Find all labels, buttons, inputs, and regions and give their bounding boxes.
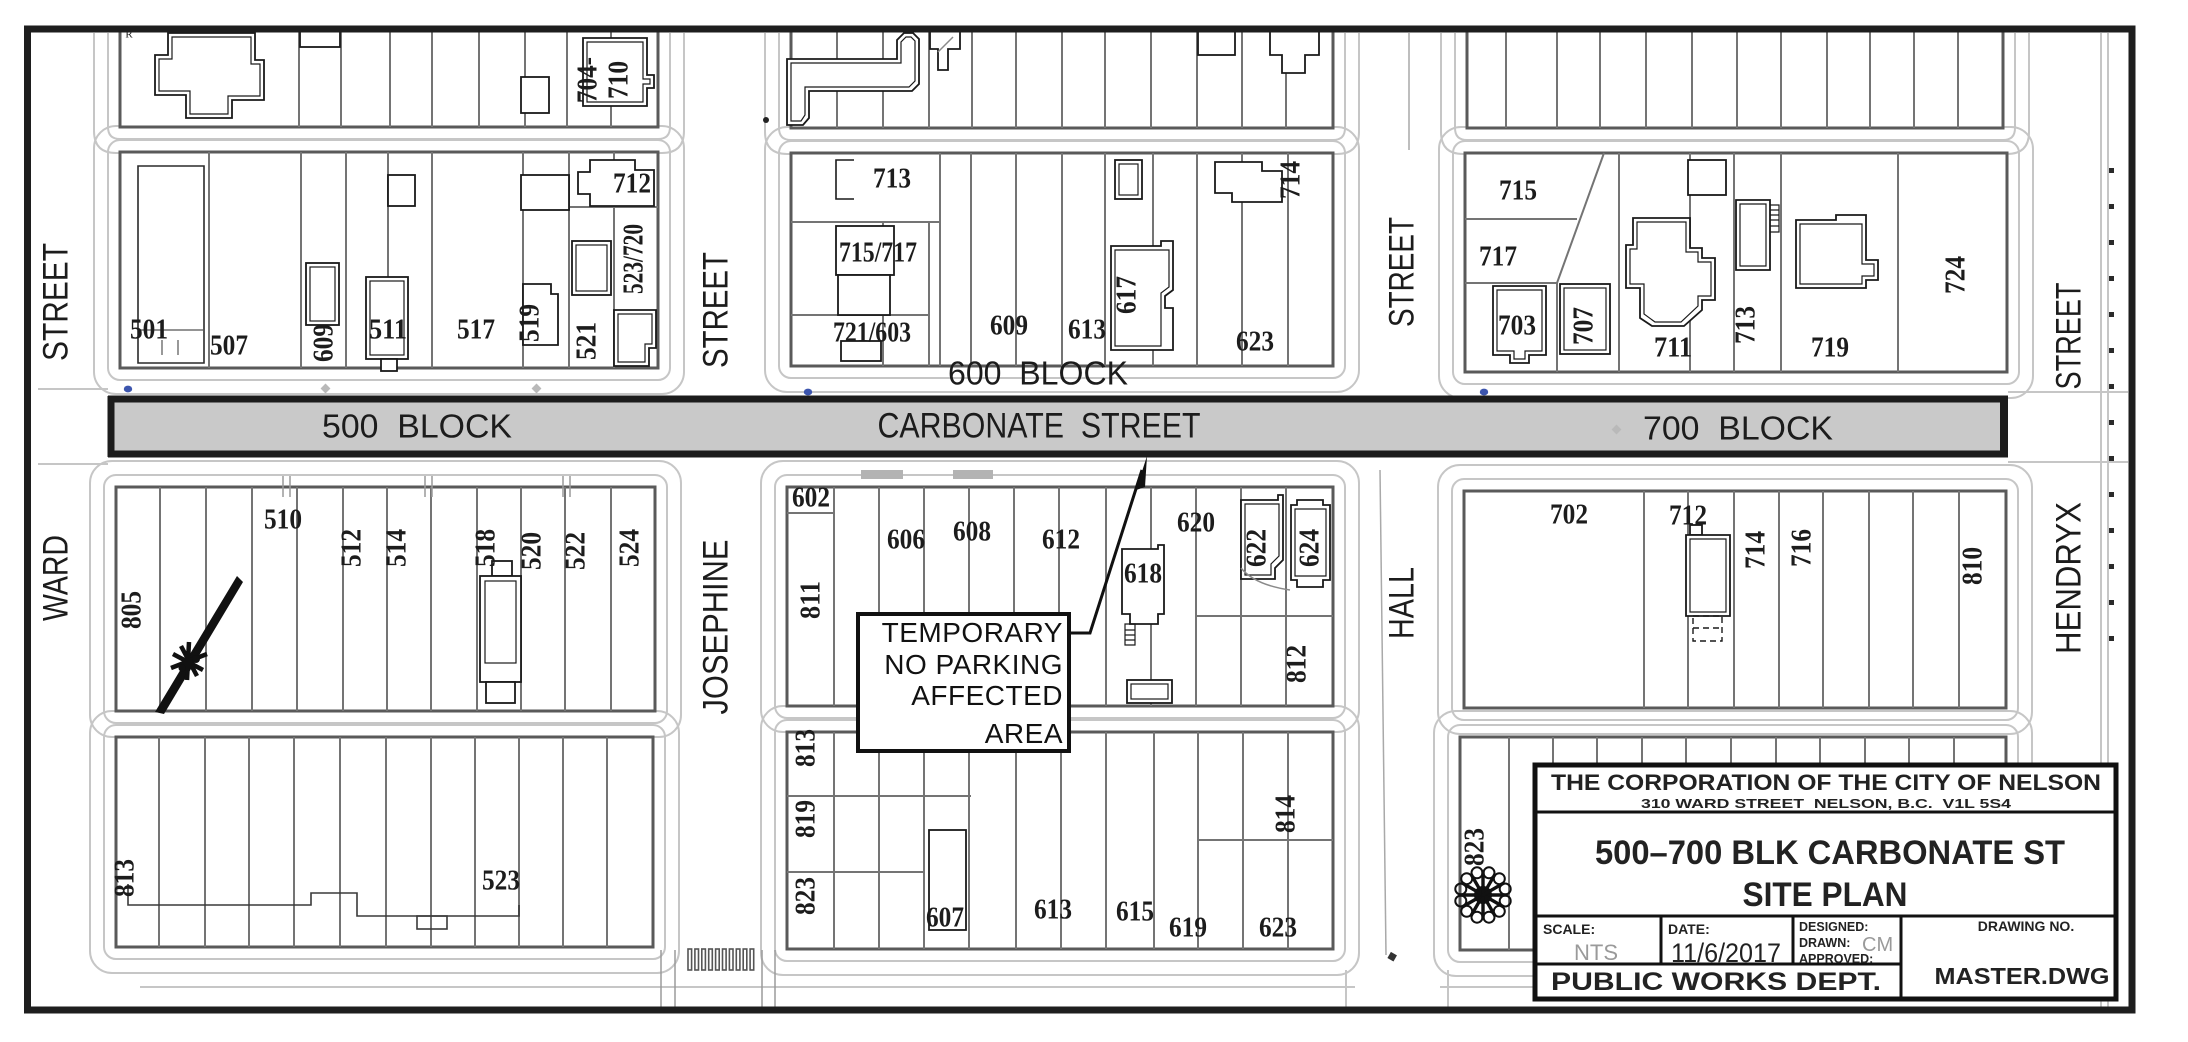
svg-text:717: 717 [1479, 241, 1517, 273]
svg-text:623: 623 [1236, 326, 1274, 358]
svg-text:STREET: STREET [696, 252, 735, 368]
svg-text:520: 520 [516, 532, 548, 570]
svg-text:507: 507 [210, 330, 248, 362]
svg-text:518: 518 [470, 529, 502, 567]
svg-text:704-: 704- [572, 57, 604, 103]
svg-text:514: 514 [381, 529, 413, 567]
svg-text:600 BLOCK: 600 BLOCK [948, 355, 1128, 392]
svg-text:711: 711 [1654, 332, 1692, 364]
svg-text:707: 707 [1568, 307, 1600, 345]
svg-text:620: 620 [1177, 507, 1215, 539]
svg-text:517: 517 [457, 314, 495, 346]
svg-text:715: 715 [1499, 175, 1537, 207]
svg-text:500 BLOCK: 500 BLOCK [322, 408, 512, 445]
svg-text:819: 819 [790, 800, 822, 838]
svg-text:THE CORPORATION OF THE CITY OF: THE CORPORATION OF THE CITY OF NELSON [1551, 770, 2101, 795]
svg-text:813: 813 [109, 859, 141, 897]
svg-text:712: 712 [613, 168, 651, 200]
svg-text:510: 510 [264, 504, 302, 536]
svg-text:519: 519 [514, 304, 546, 342]
svg-text:624: 624 [1294, 529, 1326, 567]
svg-text:501: 501 [130, 314, 168, 346]
svg-text:609: 609 [990, 310, 1028, 342]
svg-text:619: 619 [1169, 912, 1207, 944]
svg-text:DRAWING NO.: DRAWING NO. [1978, 918, 2074, 934]
svg-text:STREET: STREET [1382, 217, 1421, 327]
svg-text:805: 805 [116, 591, 148, 629]
svg-text:SITE PLAN: SITE PLAN [1743, 876, 1908, 914]
svg-text:623: 623 [1259, 912, 1297, 944]
svg-text:714: 714 [1740, 531, 1772, 569]
svg-text:715/717: 715/717 [839, 237, 917, 269]
svg-text:HALL: HALL [1382, 567, 1421, 639]
svg-text:11/6/2017: 11/6/2017 [1671, 938, 1781, 968]
svg-text:NO PARKING: NO PARKING [884, 649, 1063, 680]
svg-text:523/720: 523/720 [618, 224, 650, 294]
svg-text:712: 712 [1669, 500, 1707, 532]
svg-text:617: 617 [1111, 276, 1143, 314]
svg-text:823: 823 [1459, 828, 1491, 866]
svg-text:524: 524 [614, 529, 646, 567]
svg-text:MASTER.DWG: MASTER.DWG [1935, 963, 2110, 989]
svg-text:700 BLOCK: 700 BLOCK [1643, 410, 1833, 447]
svg-text:613: 613 [1068, 314, 1106, 346]
svg-text:DATE:: DATE: [1668, 921, 1710, 937]
svg-text:615: 615 [1116, 896, 1154, 928]
svg-text:STREET: STREET [36, 243, 75, 361]
svg-text:823: 823 [790, 877, 822, 915]
svg-text:500–700 BLK CARBONATE ST: 500–700 BLK CARBONATE ST [1595, 834, 2065, 872]
svg-text:612: 612 [1042, 524, 1080, 556]
svg-text:CARBONATE STREET: CARBONATE STREET [878, 406, 1201, 445]
svg-text:TEMPORARY: TEMPORARY [882, 617, 1063, 648]
svg-text:APPROVED:: APPROVED: [1799, 952, 1873, 966]
svg-text:713: 713 [873, 163, 911, 195]
svg-text:618: 618 [1124, 558, 1162, 590]
svg-text:608: 608 [953, 516, 991, 548]
svg-text:713: 713 [1730, 306, 1762, 344]
svg-text:521: 521 [571, 322, 603, 360]
svg-text:811: 811 [795, 581, 827, 619]
svg-text:310 WARD STREET NELSON, B.C.: 310 WARD STREET NELSON, B.C. V1L 5S4 [1641, 796, 2012, 811]
svg-text:602: 602 [792, 482, 830, 514]
svg-text:DESIGNED:: DESIGNED: [1799, 920, 1868, 934]
svg-text:511: 511 [369, 314, 407, 346]
svg-text:NTS: NTS [1574, 940, 1618, 965]
svg-text:SCALE:: SCALE: [1543, 921, 1595, 937]
svg-text:716: 716 [1786, 529, 1818, 567]
svg-text:AFFECTED: AFFECTED [911, 680, 1063, 711]
svg-text:PUBLIC WORKS DEPT.: PUBLIC WORKS DEPT. [1551, 968, 1881, 996]
svg-text:719: 719 [1811, 332, 1849, 364]
svg-text:721/603: 721/603 [833, 317, 911, 349]
svg-text:609: 609 [308, 324, 340, 362]
svg-text:522: 522 [560, 532, 592, 570]
svg-text:714: 714 [1275, 161, 1307, 199]
svg-text:606: 606 [887, 524, 925, 556]
svg-text:607: 607 [926, 902, 964, 934]
svg-text:814: 814 [1270, 795, 1302, 833]
svg-text:523: 523 [482, 865, 520, 897]
svg-text:DRAWN:: DRAWN: [1799, 936, 1850, 950]
svg-text:STREET: STREET [2049, 283, 2088, 390]
svg-text:702: 702 [1550, 499, 1588, 531]
svg-text:810: 810 [1957, 547, 1989, 585]
svg-text:613: 613 [1034, 894, 1072, 926]
svg-text:512: 512 [336, 529, 368, 567]
svg-text:724: 724 [1940, 256, 1972, 294]
svg-text:813: 813 [790, 729, 822, 767]
svg-text:622: 622 [1241, 529, 1273, 567]
svg-text:HENDRYX: HENDRYX [2049, 502, 2088, 654]
svg-text:812: 812 [1281, 645, 1313, 683]
svg-text:703: 703 [1498, 310, 1536, 342]
svg-text:710: 710 [603, 61, 635, 99]
svg-text:AREA: AREA [985, 718, 1063, 749]
svg-text:JOSEPHINE: JOSEPHINE [696, 540, 735, 715]
svg-text:WARD: WARD [36, 535, 75, 621]
